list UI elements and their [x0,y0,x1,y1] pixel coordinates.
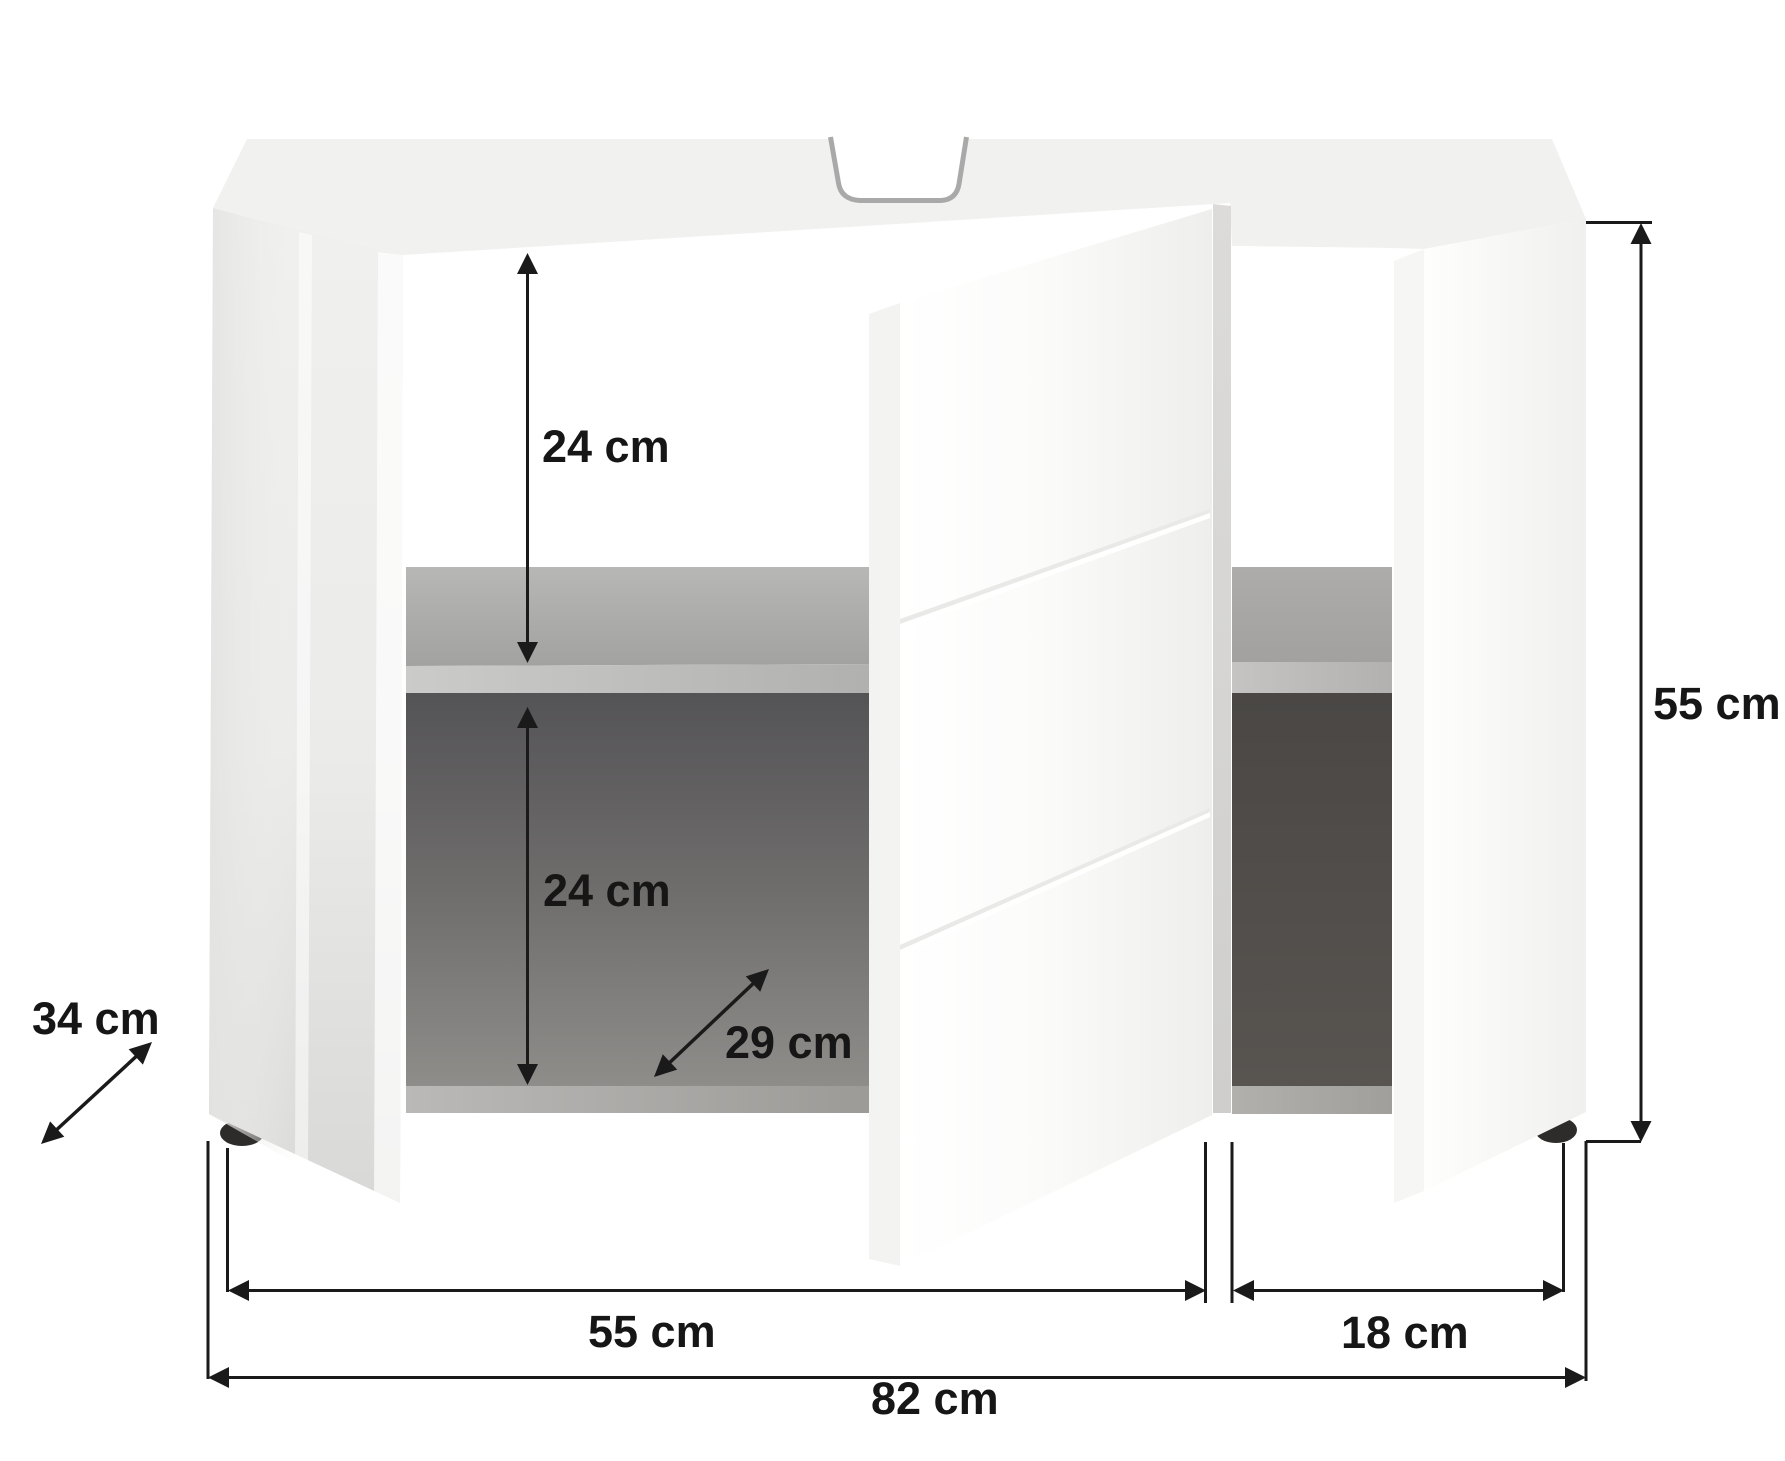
svg-text:82 cm: 82 cm [871,1373,999,1424]
svg-text:24 cm: 24 cm [542,421,670,472]
svg-text:55 cm: 55 cm [1653,678,1781,729]
svg-text:55 cm: 55 cm [588,1306,716,1357]
svg-text:29 cm: 29 cm [725,1017,853,1068]
svg-text:24 cm: 24 cm [543,865,671,916]
svg-text:18 cm: 18 cm [1341,1307,1469,1358]
svg-text:34 cm: 34 cm [32,993,160,1044]
